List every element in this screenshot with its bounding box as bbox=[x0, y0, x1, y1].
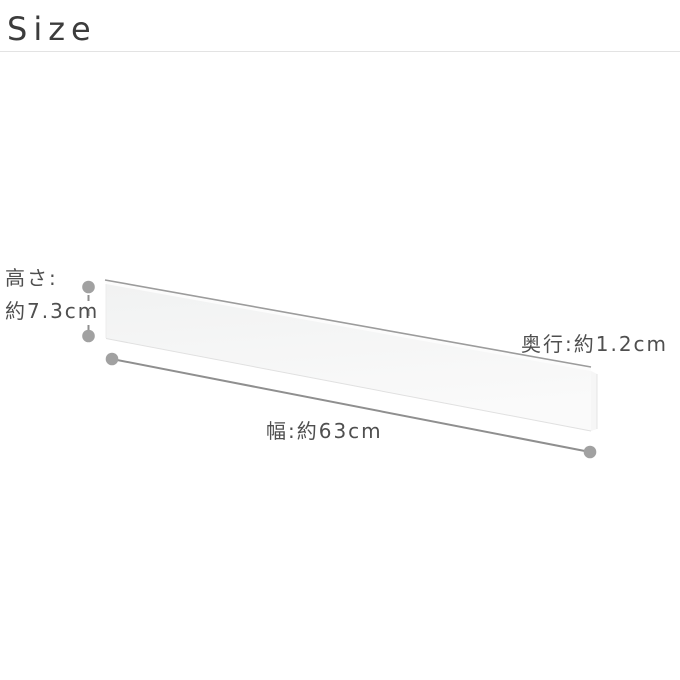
height-label-line2: 約7.3cm bbox=[5, 295, 99, 328]
product-dimension-diagram: 高さ: 約7.3cm 奥行:約1.2cm 幅:約63cm bbox=[0, 0, 680, 680]
height-label-line1: 高さ: bbox=[5, 262, 99, 295]
width-measure-dot-left bbox=[106, 353, 119, 366]
height-measure-dot-bottom bbox=[82, 330, 95, 343]
width-dimension-label: 幅:約63cm bbox=[266, 415, 383, 444]
width-measure-dot-right bbox=[584, 446, 597, 459]
height-dimension-label: 高さ: 約7.3cm bbox=[5, 262, 99, 328]
panel-side-face bbox=[591, 371, 597, 431]
depth-dimension-label: 奥行:約1.2cm bbox=[521, 328, 668, 357]
size-diagram-page: Size bbox=[0, 0, 680, 680]
